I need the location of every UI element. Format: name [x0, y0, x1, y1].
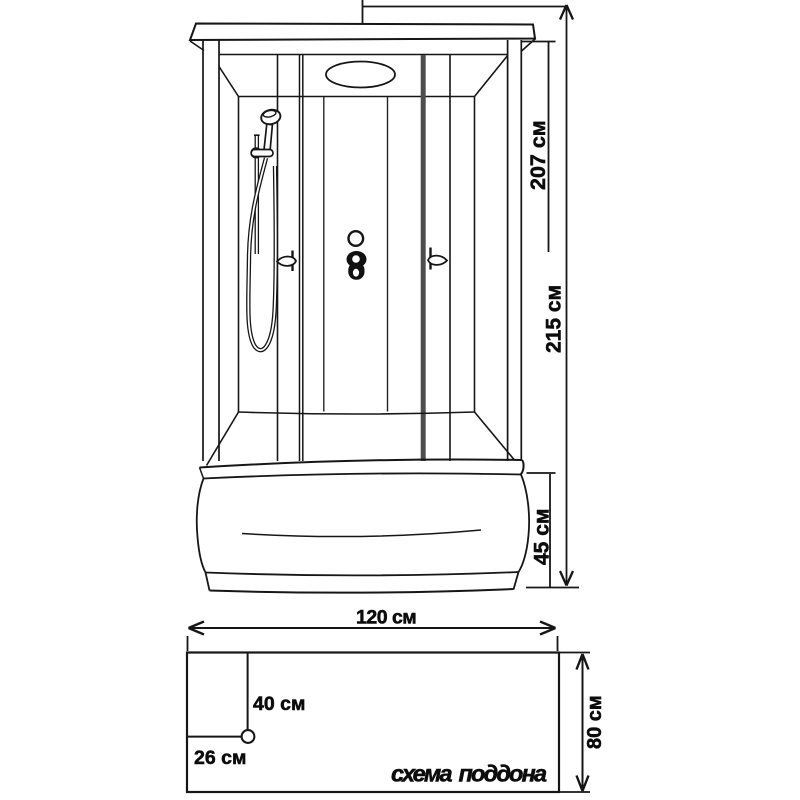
- svg-text:80 см: 80 см: [584, 695, 606, 749]
- svg-text:45 см: 45 см: [531, 509, 554, 565]
- svg-text:215 см: 215 см: [543, 285, 566, 353]
- svg-text:26 см: 26 см: [194, 747, 246, 769]
- svg-text:120 см: 120 см: [356, 607, 416, 629]
- svg-text:207 см: 207 см: [526, 120, 550, 190]
- svg-text:схема поддона: схема поддона: [391, 761, 547, 787]
- svg-text:40 см: 40 см: [253, 693, 305, 715]
